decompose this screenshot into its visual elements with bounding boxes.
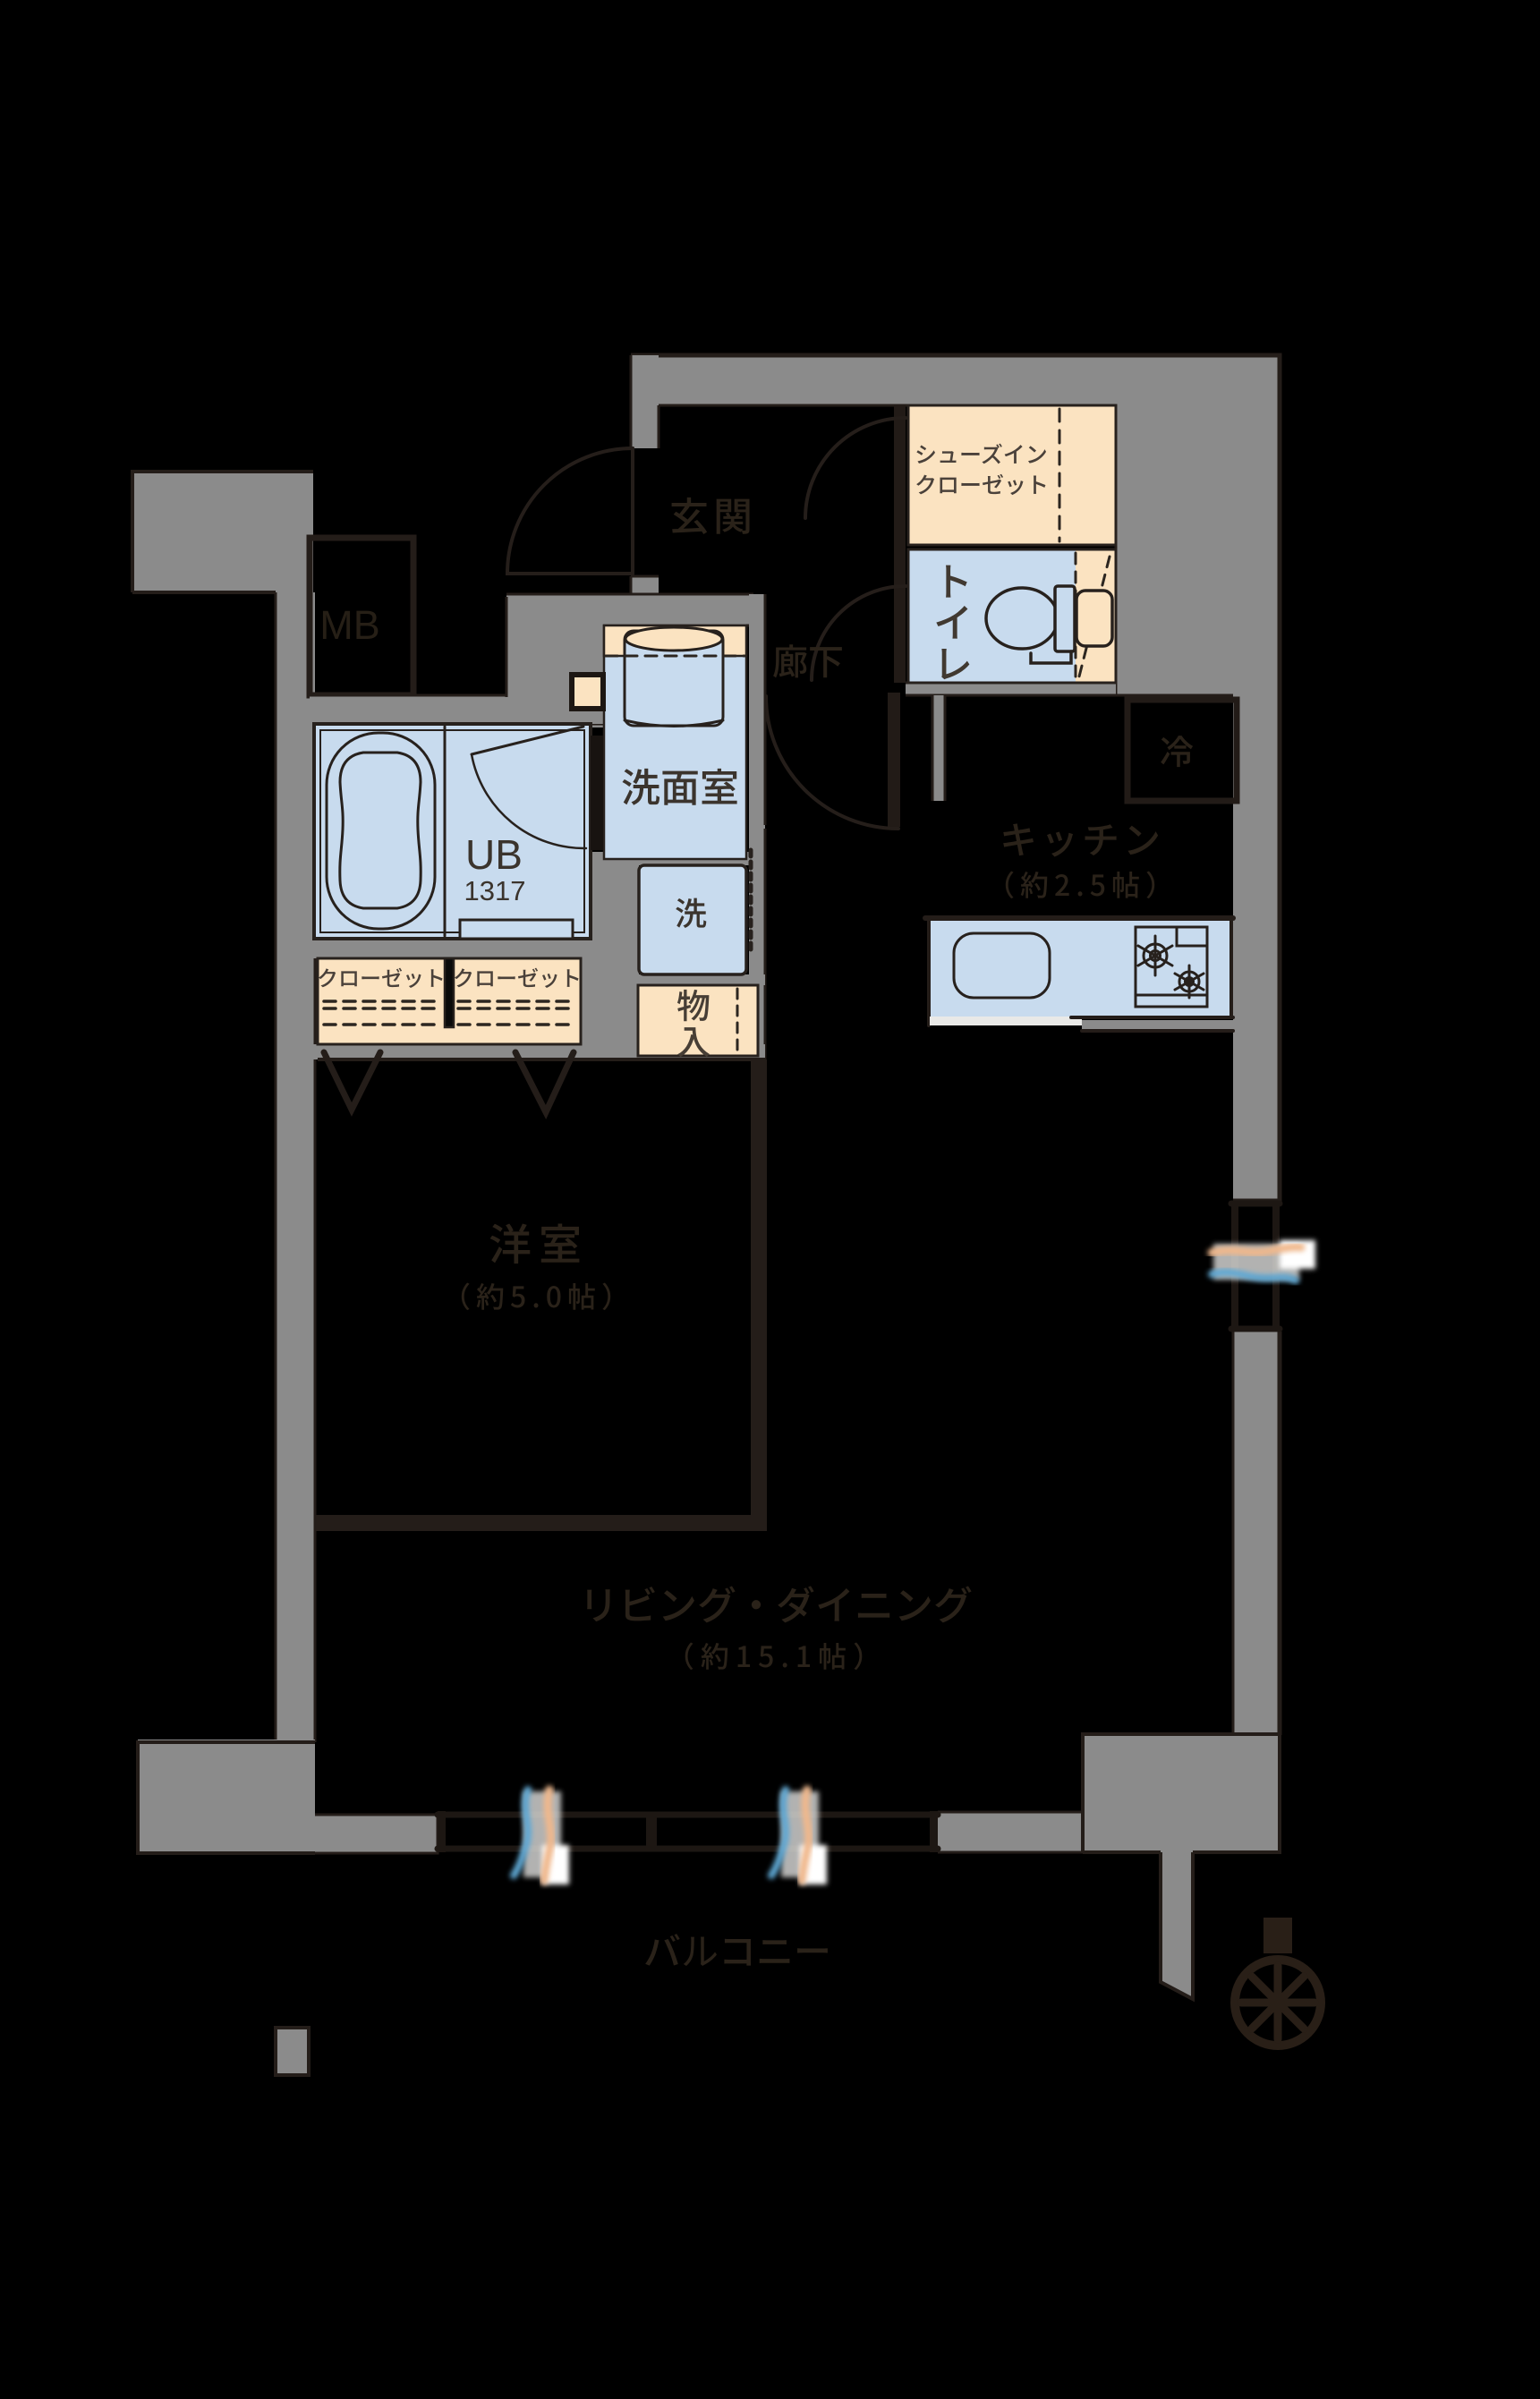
svg-text:MB: MB	[319, 602, 380, 648]
svg-text:入: 入	[676, 1015, 710, 1064]
svg-text:クローゼット: クローゼット	[317, 961, 446, 992]
svg-text:洋室: 洋室	[489, 1210, 589, 1272]
svg-text:玄関: 玄関	[669, 485, 757, 542]
svg-text:廊下: 廊下	[772, 634, 844, 685]
svg-text:洗面室: 洗面室	[621, 756, 739, 813]
svg-text:1317: 1317	[464, 875, 526, 906]
svg-text:キッチン: キッチン	[1000, 811, 1164, 865]
svg-text:クローゼット: クローゼット	[915, 468, 1049, 500]
svg-text:UB: UB	[465, 831, 523, 878]
svg-text:洗: 洗	[675, 889, 707, 935]
svg-text:（約15.1帖）: （約15.1帖）	[666, 1635, 888, 1676]
svg-text:（約5.0帖）: （約5.0帖）	[442, 1275, 635, 1316]
svg-text:冷: 冷	[1160, 725, 1194, 774]
svg-text:バルコニー: バルコニー	[643, 1922, 831, 1977]
svg-text:リビング・ダイニング: リビング・ダイニング	[579, 1574, 973, 1631]
svg-text:クローゼット: クローゼット	[453, 961, 582, 992]
svg-text:（約2.5帖）: （約2.5帖）	[986, 863, 1179, 905]
svg-text:レ: レ	[933, 633, 973, 690]
svg-text:シューズイン: シューズイン	[915, 438, 1048, 470]
